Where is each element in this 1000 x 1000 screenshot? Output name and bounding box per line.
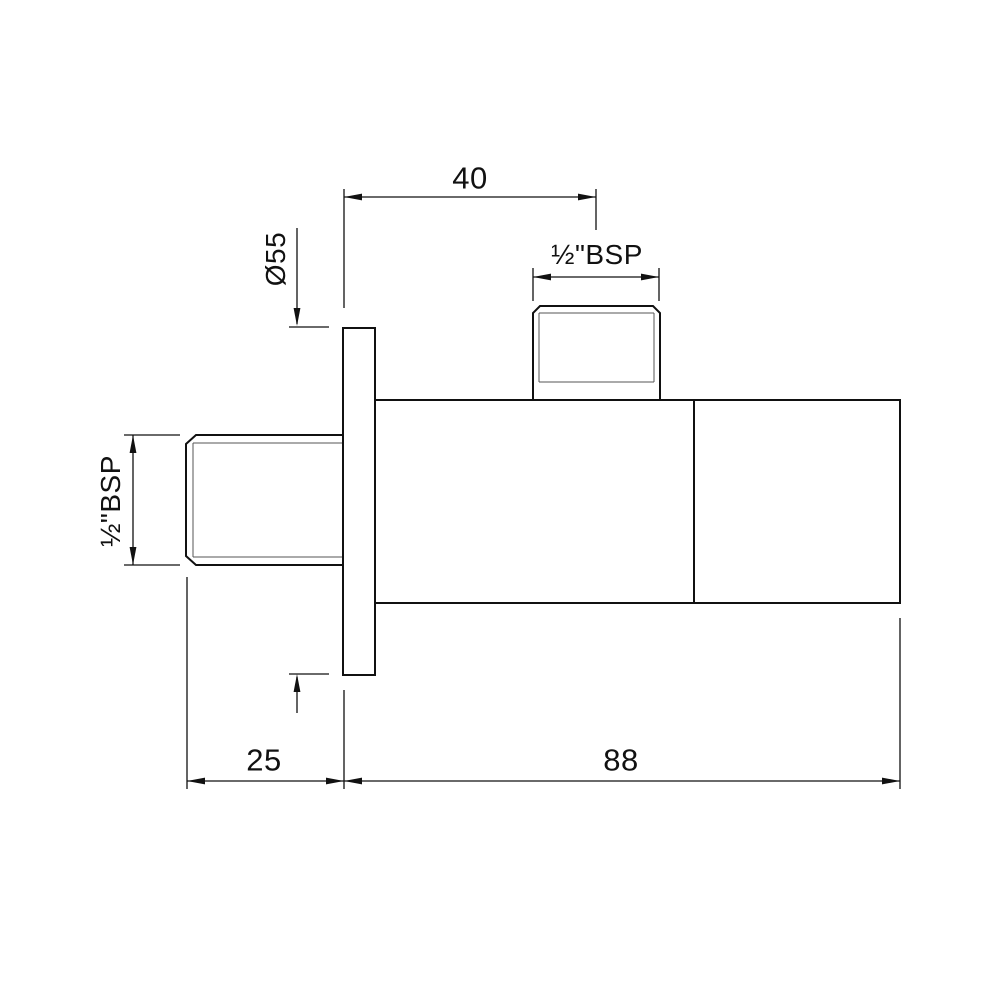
technical-drawing-canvas: 40 ½"BSP Ø55 ½"BSP 25 88 [0, 0, 1000, 1000]
dim-dia-arrow-down [294, 308, 301, 326]
dimension-40-label: 40 [452, 163, 487, 194]
valve-body [375, 400, 900, 603]
dimension-outlet-thread [533, 268, 659, 301]
outlet-fitting [533, 306, 660, 400]
flange-diameter-label: Ø55 [262, 232, 290, 286]
inlet-thread-lines [193, 443, 343, 557]
dimension-inlet-thread [124, 435, 180, 565]
outlet-thread-label: ½"BSP [551, 241, 643, 269]
dim-inlet-arrow-up [130, 435, 137, 453]
inlet-fitting-outline [186, 435, 343, 565]
dimension-bottom [187, 577, 900, 789]
dim-25-arrow-left [187, 778, 205, 785]
outlet-fitting-outline [533, 306, 660, 400]
outlet-thread-lines [539, 313, 654, 382]
wall-flange [343, 328, 375, 675]
dim-88-arrow-right [882, 778, 900, 785]
dimension-88-label: 88 [603, 745, 638, 776]
dim-outlet-arrow-left [533, 274, 551, 281]
dimension-25-label: 25 [246, 745, 281, 776]
inlet-thread-label: ½"BSP [97, 455, 125, 547]
dimension-flange-diameter [289, 228, 329, 713]
valve-body-outline [375, 400, 900, 603]
dim-40-arrow-right [578, 194, 596, 201]
dim-25-arrow-right [326, 778, 344, 785]
dim-inlet-arrow-down [130, 547, 137, 565]
dim-dia-arrow-up [294, 674, 301, 692]
dim-40-arrow-left [344, 194, 362, 201]
wall-flange-outline [343, 328, 375, 675]
dim-88-arrow-left [344, 778, 362, 785]
inlet-fitting [186, 435, 343, 565]
dim-outlet-arrow-right [641, 274, 659, 281]
drawing-linework [0, 0, 1000, 1000]
